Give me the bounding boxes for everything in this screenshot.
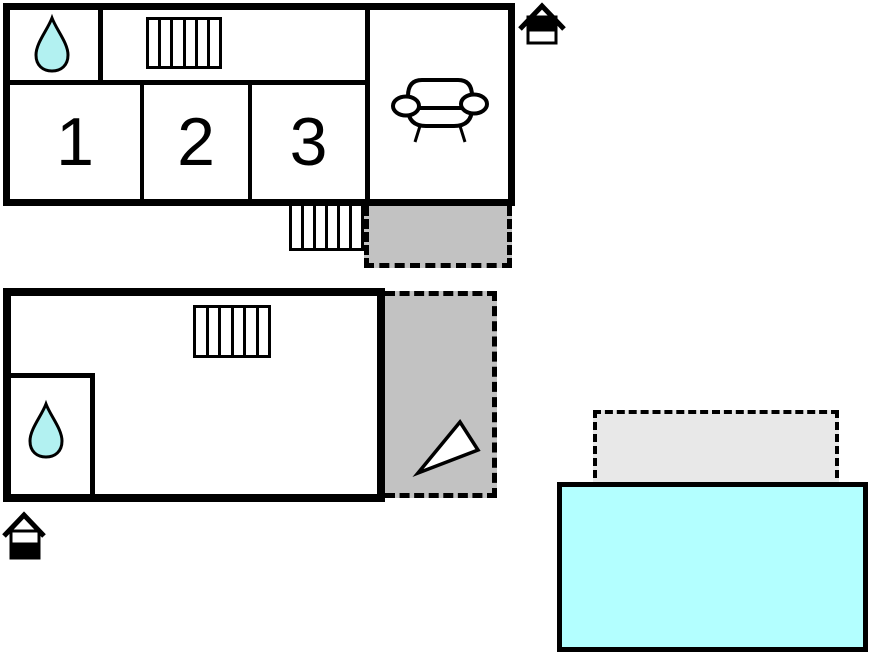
stair-step (161, 20, 173, 66)
interior-wall-living (365, 10, 370, 199)
stairs-icon (193, 305, 271, 358)
stair-step (316, 206, 328, 248)
stair-step (173, 20, 185, 66)
ground-floor-plan (3, 288, 385, 502)
room-1: 1 (10, 85, 140, 199)
sofa-icon (384, 68, 488, 146)
stair-step (259, 308, 269, 355)
patio-dashed-area (593, 410, 839, 490)
swimming-pool (557, 482, 868, 652)
interior-wall-bathroom (98, 10, 103, 80)
room-3-label: 3 (290, 108, 328, 176)
stair-step (328, 206, 340, 248)
stair-step (210, 20, 219, 66)
stair-step (340, 206, 352, 248)
stair-step (304, 206, 316, 248)
room-2: 2 (144, 85, 248, 199)
stairs-icon (146, 17, 222, 69)
stair-step (209, 308, 222, 355)
house-upper-level-icon (516, 1, 568, 47)
interior-wall-bathroom-vertical (90, 373, 95, 494)
water-drop-icon (33, 16, 71, 74)
north-arrow-icon (405, 411, 485, 479)
interior-wall-bathroom-horizontal (11, 373, 95, 378)
stair-step (198, 20, 210, 66)
terrace-upper (364, 206, 512, 268)
room-2-label: 2 (177, 108, 215, 176)
stair-step (186, 20, 198, 66)
stair-step (246, 308, 259, 355)
water-drop-icon (27, 402, 65, 460)
stair-step (292, 206, 304, 248)
exterior-stairs-icon (289, 206, 364, 251)
stair-step (352, 206, 361, 248)
room-1-label: 1 (56, 108, 94, 176)
floor-plan-canvas: 1 2 3 (0, 0, 870, 652)
room-3: 3 (252, 85, 365, 199)
house-ground-level-icon (1, 511, 47, 561)
stair-step (149, 20, 161, 66)
stair-step (234, 308, 247, 355)
upper-floor-plan: 1 2 3 (3, 3, 515, 206)
stair-step (221, 308, 234, 355)
stair-step (196, 308, 209, 355)
terrace-ground (385, 291, 497, 498)
